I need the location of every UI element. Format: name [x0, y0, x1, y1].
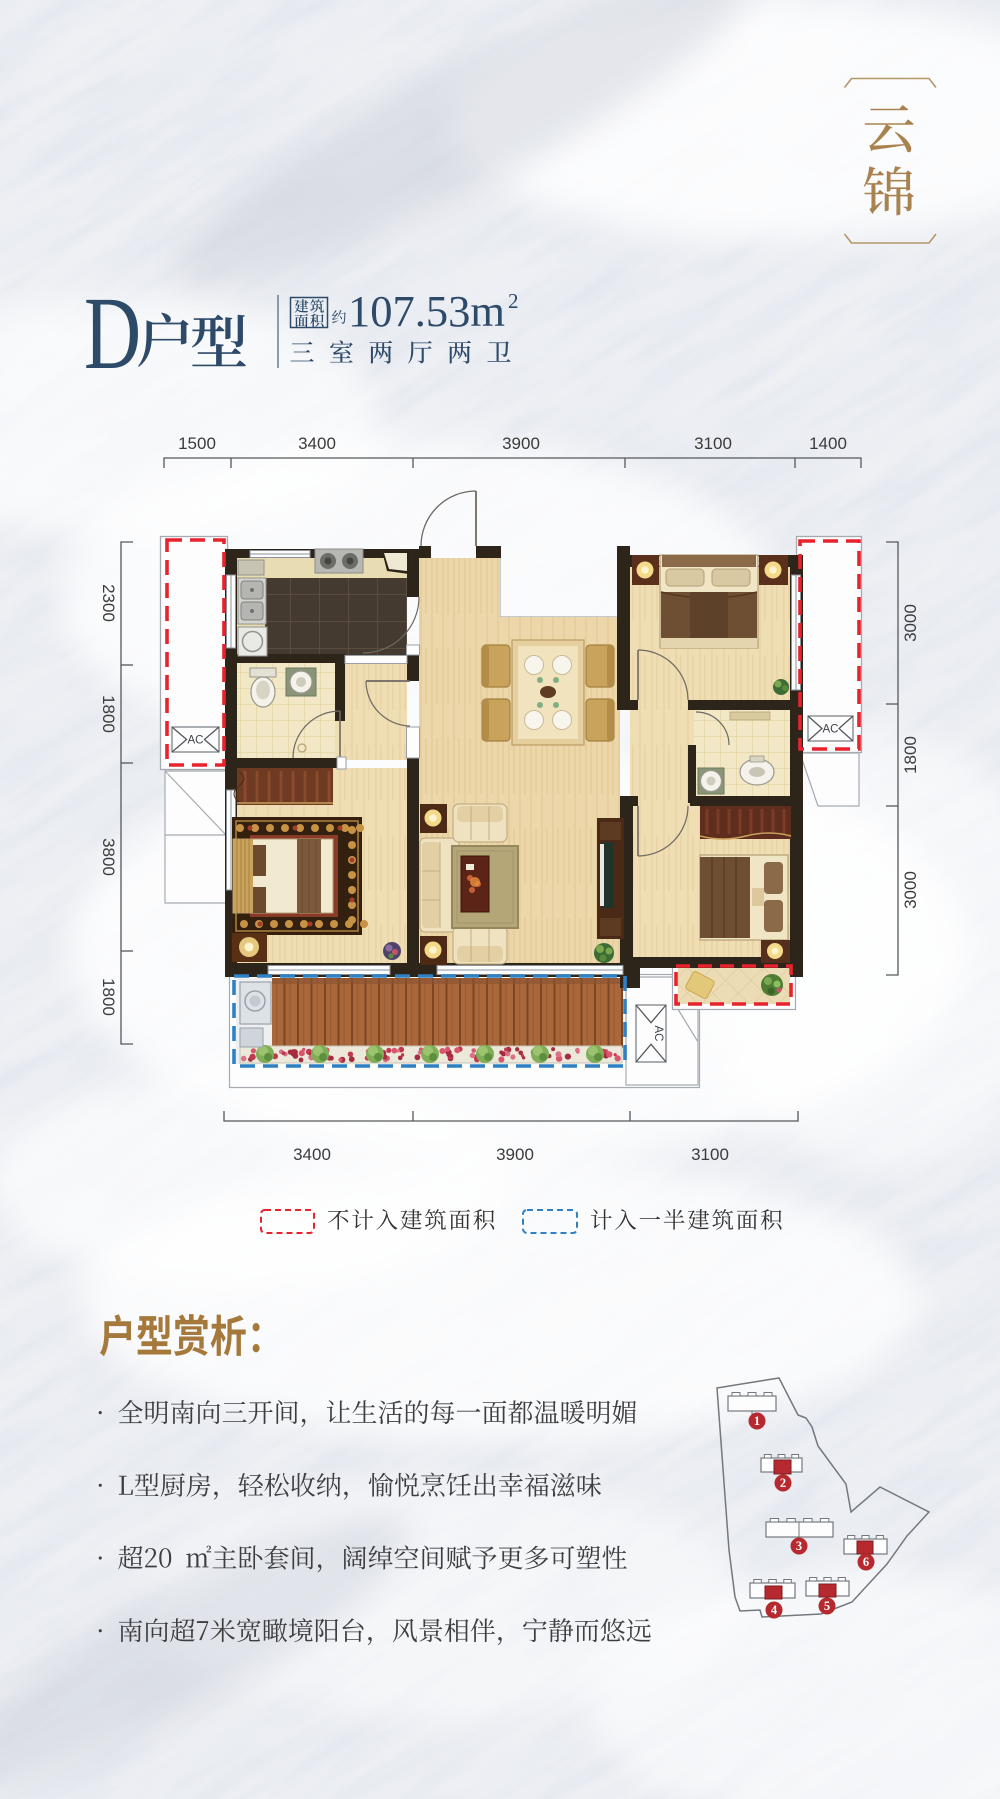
svg-text:AC: AC — [652, 1026, 664, 1042]
svg-text:107.53m: 107.53m — [348, 286, 505, 336]
svg-text:1800: 1800 — [99, 695, 118, 733]
svg-text:1800: 1800 — [99, 978, 118, 1016]
svg-text:6: 6 — [863, 1555, 869, 1569]
svg-text:AC: AC — [188, 735, 204, 747]
svg-text:3900: 3900 — [496, 1145, 534, 1164]
svg-text:1400: 1400 — [809, 434, 847, 453]
svg-text:1500: 1500 — [178, 434, 216, 453]
svg-text:5: 5 — [824, 1599, 830, 1613]
svg-text:3100: 3100 — [694, 434, 732, 453]
svg-text:AC: AC — [823, 724, 839, 736]
svg-text:3000: 3000 — [901, 604, 920, 642]
svg-text:3400: 3400 — [293, 1145, 331, 1164]
svg-text:3: 3 — [796, 1539, 802, 1553]
svg-text:1: 1 — [754, 1414, 760, 1428]
svg-text:3900: 3900 — [502, 434, 540, 453]
svg-text:2: 2 — [780, 1476, 786, 1490]
svg-text:4: 4 — [771, 1603, 778, 1617]
svg-text:3800: 3800 — [99, 838, 118, 876]
svg-text:3400: 3400 — [298, 434, 336, 453]
svg-text:3000: 3000 — [901, 871, 920, 909]
svg-text:3100: 3100 — [691, 1145, 729, 1164]
svg-text:D: D — [84, 276, 141, 391]
svg-text:1800: 1800 — [901, 736, 920, 774]
svg-text:2300: 2300 — [99, 584, 118, 622]
svg-text:2: 2 — [508, 289, 519, 313]
